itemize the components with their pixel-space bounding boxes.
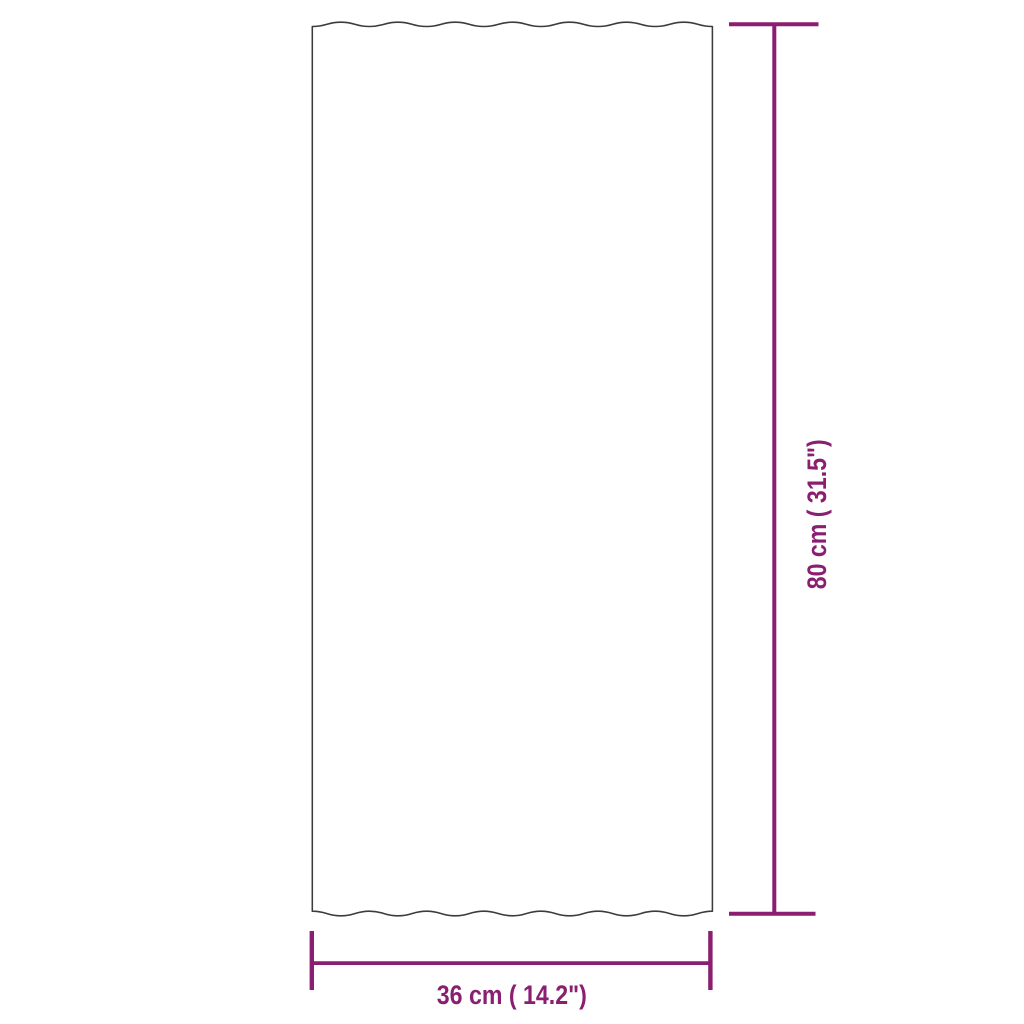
svg-text:36 cm ( 14.2"): 36 cm ( 14.2") <box>437 980 587 1010</box>
svg-text:80 cm ( 31.5"): 80 cm ( 31.5") <box>802 439 832 589</box>
